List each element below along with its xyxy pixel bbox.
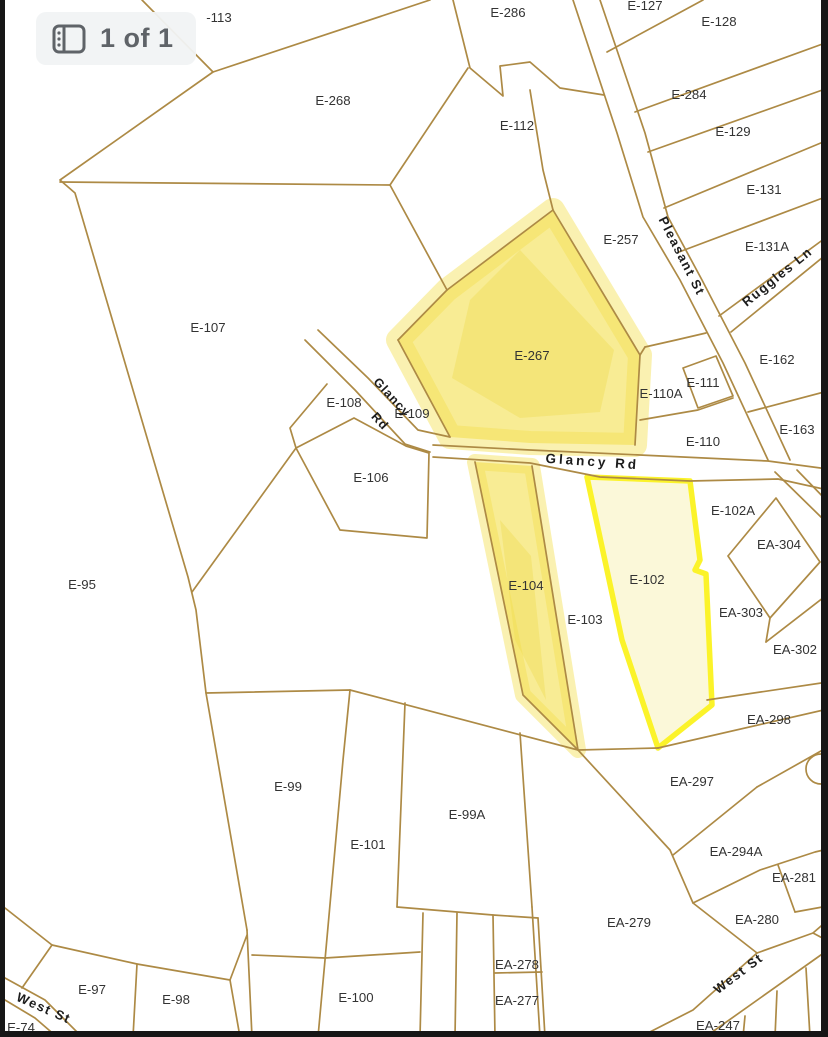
parcel-boundary-line <box>5 908 52 945</box>
parcel-boundary-line <box>230 980 240 1037</box>
parcel-boundary-line <box>455 913 457 1037</box>
parcel-label-E-284: E-284 <box>671 87 706 102</box>
parcel-label-EA-298: EA-298 <box>747 712 791 727</box>
parcel-label-E-131: E-131 <box>746 182 781 197</box>
parcel-boundary-line <box>775 472 823 519</box>
parcel-label-E-267: E-267 <box>514 348 549 363</box>
parcel-label-EA-297: EA-297 <box>670 774 714 789</box>
parcel-boundary-line <box>252 952 420 958</box>
parcel-label-EA-294A: EA-294A <box>710 844 763 859</box>
parcel-label-E-110: E-110 <box>686 434 720 449</box>
parcel-label-E-102: E-102 <box>629 572 664 587</box>
parcel-boundary-line <box>707 682 828 700</box>
parcel-label-E-162: E-162 <box>759 352 794 367</box>
page-count-label: 1 of 1 <box>100 23 174 54</box>
parcel-boundary-line <box>645 333 706 347</box>
parcel-label-E-257: E-257 <box>603 232 638 247</box>
parcel-boundary-line <box>213 0 430 72</box>
parcel-label-E-107: E-107 <box>190 320 225 335</box>
parcel-label-E-108: E-108 <box>326 395 361 410</box>
parcel-label-E-106: E-106 <box>353 470 388 485</box>
parcel-label-E-128: E-128 <box>701 14 736 29</box>
parcel-label-E-163: E-163 <box>779 422 814 437</box>
map-viewer: -113E-286E-127E-128E-268E-284E-112E-129E… <box>0 0 828 1037</box>
parcel-boundary-line <box>493 915 495 1037</box>
parcel-label-E-101: E-101 <box>350 837 385 852</box>
parcel-boundary-line <box>420 913 423 1037</box>
road-label-rd: Rd <box>368 410 391 433</box>
parcel-boundary-line <box>806 968 810 1037</box>
parcel-label-E-102A: E-102A <box>711 503 755 518</box>
parcel-label-EA-280: EA-280 <box>735 912 779 927</box>
left-edge-bar <box>0 0 5 1037</box>
parcel-label-E-286: E-286 <box>490 5 525 20</box>
bottom-edge-bar <box>0 1031 828 1037</box>
parcel-label-EA-278: EA-278 <box>495 957 539 972</box>
parcel-label-E-104: E-104 <box>508 578 543 593</box>
parcel-boundary-line <box>52 935 247 980</box>
parcel-label-E-98: E-98 <box>162 992 190 1007</box>
parcel-label-E-268: E-268 <box>315 93 350 108</box>
parcel-label-E-112: E-112 <box>500 118 534 133</box>
parcel-label-EA-277: EA-277 <box>495 993 539 1008</box>
parcel-label-EA-281: EA-281 <box>772 870 816 885</box>
parcel-boundary-line <box>635 42 828 112</box>
page-indicator-chip[interactable]: 1 of 1 <box>36 12 196 65</box>
parcel-boundary-line <box>192 448 296 592</box>
parcel-label-E-131A: E-131A <box>745 239 789 254</box>
page-thumbnails-icon <box>52 24 86 54</box>
parcel-label-E-97: E-97 <box>78 982 106 997</box>
parcel-label-113: -113 <box>206 10 231 25</box>
parcel-label-E-129: E-129 <box>715 124 750 139</box>
parcel-boundary-line <box>247 930 252 1037</box>
parcel-boundary-line <box>766 594 828 642</box>
parcel-boundary-line <box>757 747 828 787</box>
parcel-label-E-111: E-111 <box>686 375 719 390</box>
parcel-label-E-103: E-103 <box>567 612 602 627</box>
selected-parcel-E-102[interactable] <box>587 477 712 748</box>
parcel-label-E-100: E-100 <box>338 990 373 1005</box>
parcel-boundary-line <box>453 0 604 96</box>
parcel-boundary-line <box>495 972 542 973</box>
parcel-boundary-line <box>22 945 52 988</box>
parcel-boundary-line <box>664 140 828 208</box>
parcel-boundary-line <box>397 703 405 907</box>
parcel-label-EA-279: EA-279 <box>607 915 651 930</box>
parcel-boundary-line <box>206 693 247 930</box>
parcel-boundary-line <box>397 907 538 918</box>
parcel-boundary-line <box>578 748 658 750</box>
right-edge-bar <box>821 0 828 1037</box>
parcel-label-E-99: E-99 <box>274 779 302 794</box>
parcel-boundary-line <box>530 90 553 210</box>
parcel-map-canvas[interactable]: -113E-286E-127E-128E-268E-284E-112E-129E… <box>0 0 828 1037</box>
parcel-label-EA-303: EA-303 <box>719 605 763 620</box>
parcel-label-E-95: E-95 <box>68 577 96 592</box>
parcel-label-EA-302: EA-302 <box>773 642 817 657</box>
parcel-label-E-110A: E-110A <box>639 386 682 401</box>
parcel-boundary-line <box>290 384 327 448</box>
parcel-boundary-line <box>520 733 532 907</box>
parcel-label-EA-304: EA-304 <box>757 537 801 552</box>
road-label-west-st: West St <box>711 950 766 997</box>
parcel-boundary-line <box>390 68 468 185</box>
parcel-label-E-99A: E-99A <box>449 807 486 822</box>
parcel-boundary-line <box>60 182 390 185</box>
parcel-boundary-line <box>390 185 447 290</box>
parcel-label-E-127: E-127 <box>627 0 662 13</box>
parcel-boundary-line <box>133 964 137 1037</box>
parcel-boundary-line <box>318 690 350 1037</box>
